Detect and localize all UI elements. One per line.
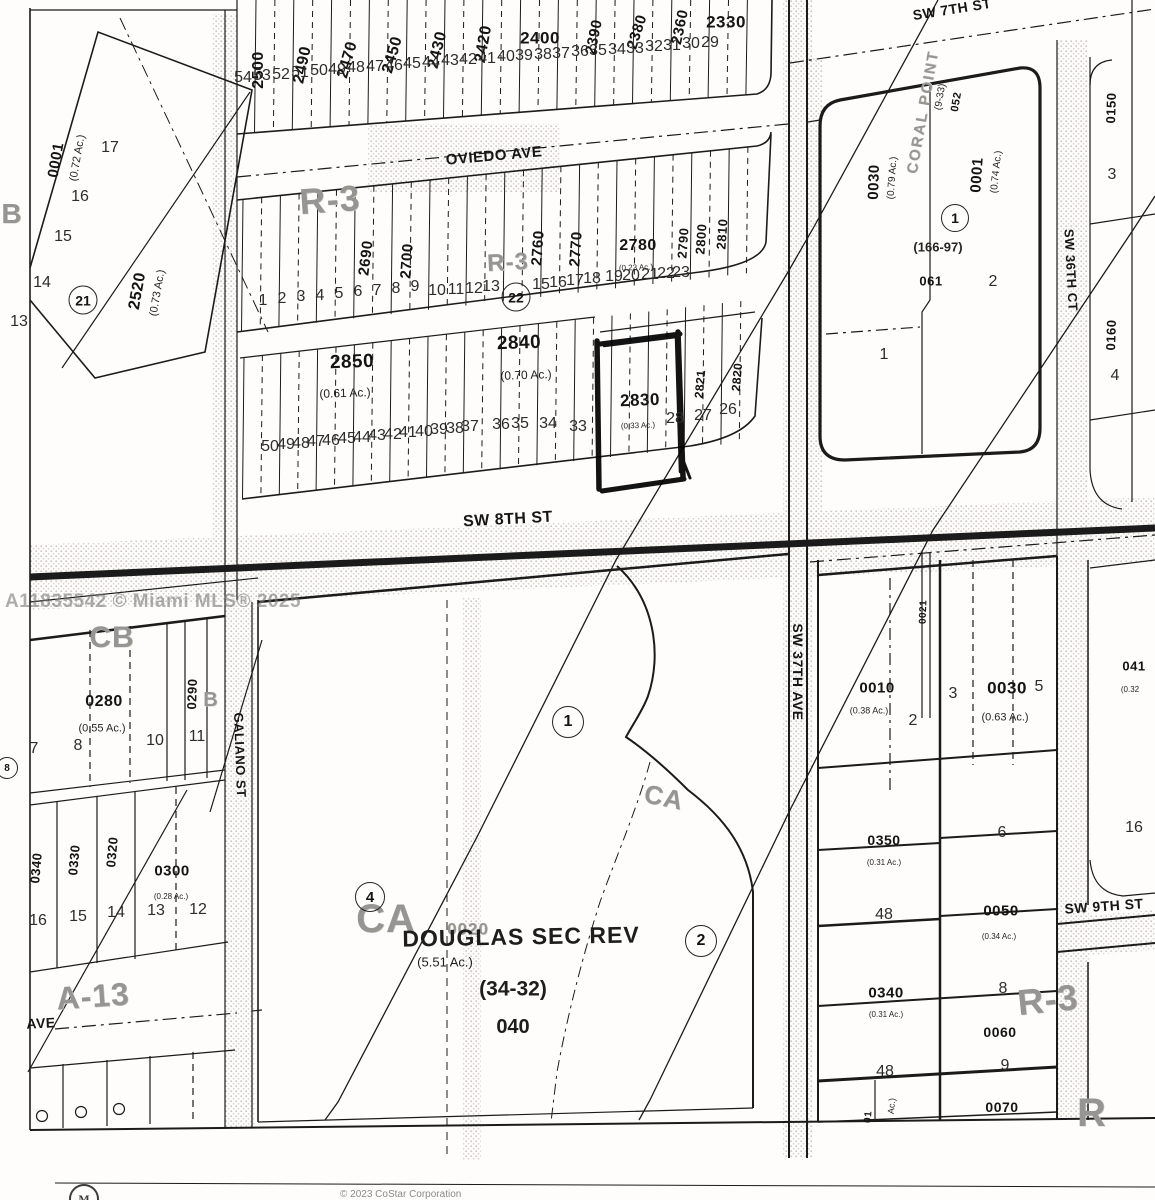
footer-copyright: © 2023 CoStar Corporation: [340, 1189, 461, 1200]
stipple-bands: [30, 0, 1155, 1160]
plat-map-page: OVIEDO AVESW 8TH STSW 7TH STSW 37TH AVES…: [0, 0, 1155, 1200]
mls-watermark: A11835542 © Miami MLS® 2025: [5, 591, 301, 613]
lot-separator-lines: [242, 0, 748, 498]
